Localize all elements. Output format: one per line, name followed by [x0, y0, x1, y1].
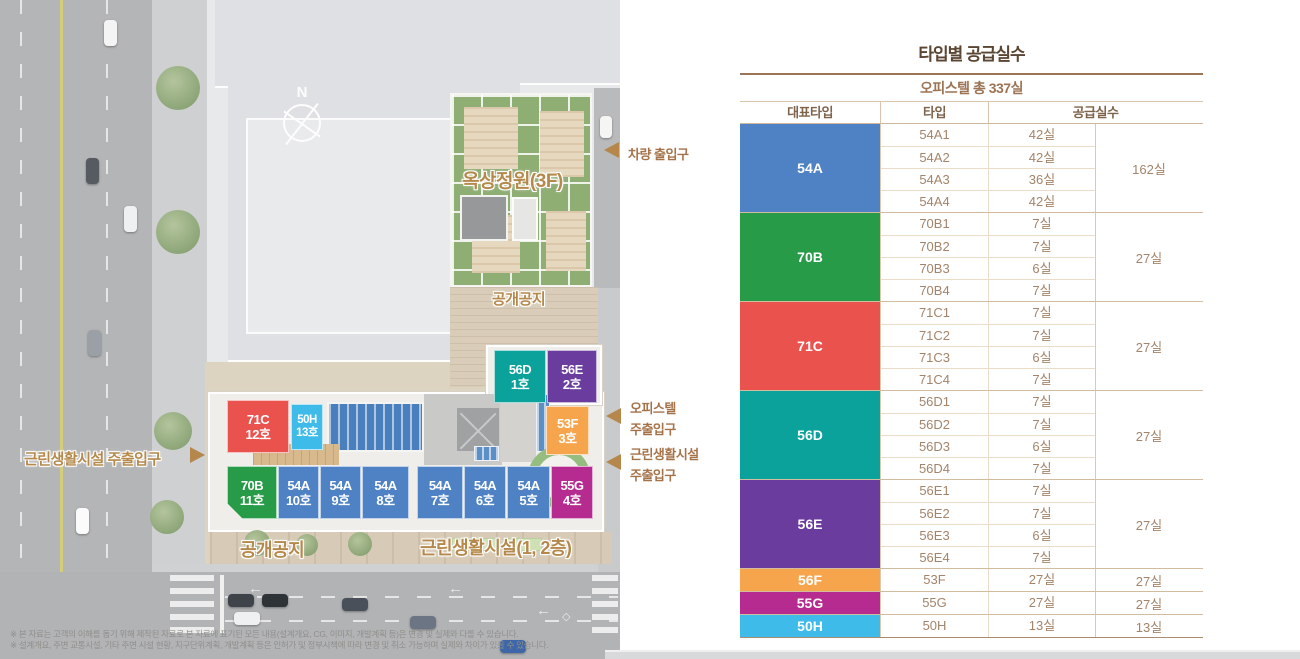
table-row: 54A442실: [881, 190, 1095, 212]
open-space-upper-label: 공개공지: [492, 288, 545, 309]
table-subtitle: 오피스텔 총 337실: [740, 73, 1203, 102]
table-group-56e: 56E 56E17실 56E27실 56E36실 56E47실 27실: [740, 480, 1203, 569]
car-icon: [124, 206, 137, 232]
group-total-cell: 27실: [1095, 569, 1202, 591]
footnote-line: ※ 본 자료는 고객의 이해를 돕기 위해 제작된 자료로 본 자료에 표기된 …: [10, 629, 610, 640]
group-total-cell: 162실: [1095, 124, 1202, 212]
table-title: 타입별 공급실수: [740, 40, 1203, 64]
unit-block-5: 54A5호: [507, 466, 550, 519]
unit-block-6: 54A6호: [464, 466, 506, 519]
table-row: 56D27실: [881, 413, 1095, 435]
compass-icon: N: [280, 84, 324, 168]
group-total-cell: 27실: [1095, 592, 1202, 614]
neighborhood-floors-label: 근린생활시설(1, 2층): [420, 534, 571, 560]
officetel-entrance-label: 오피스텔 주출입구: [630, 398, 676, 440]
site-plan: ← ← ← ◇ N 옥상정원(3F): [0, 0, 620, 659]
rep-type-cell: 55G: [740, 592, 880, 614]
rooftop-garden-label: 옥상정원(3F): [462, 166, 563, 193]
unit-block-13: 50H13호: [291, 404, 323, 450]
lane-line: [20, 0, 22, 572]
rooftop-structure: [512, 197, 538, 241]
neighborhood-entrance-label: 근린생활시설 주출입구: [630, 444, 699, 486]
rep-type-cell: 54A: [740, 124, 880, 212]
group-total-cell: 27실: [1095, 302, 1202, 390]
car-icon: [104, 20, 117, 46]
page: ← ← ← ◇ N 옥상정원(3F): [0, 0, 1300, 659]
road-vertical: [0, 0, 152, 659]
group-total-cell: 13실: [1095, 615, 1202, 637]
table-row: 71C36실: [881, 346, 1095, 368]
table-row: 56E36실: [881, 524, 1095, 546]
unit-block-4: 55G4호: [551, 466, 593, 519]
table-row: 56E47실: [881, 546, 1095, 568]
table-row: 56E27실: [881, 502, 1095, 524]
table-row: 56D17실: [881, 391, 1095, 413]
road-diamond-icon: ◇: [562, 610, 570, 623]
sidewalk-bottom: [152, 564, 620, 572]
supply-table: 타입별 공급실수 오피스텔 총 337실 대표타입 타입 공급실수 54A 54…: [740, 40, 1203, 638]
unit-block-12: 71C12호: [227, 400, 289, 453]
table-row: 71C47실: [881, 368, 1095, 390]
car-icon: [410, 616, 436, 629]
solar-panel: [474, 446, 499, 461]
neighborhood-entrance-left-label: 근린생활시설 주출입구: [24, 448, 161, 469]
crosswalk: [592, 575, 618, 633]
open-space-bottom-label: 공개공지: [240, 536, 304, 562]
rep-type-cell: 56D: [740, 391, 880, 479]
table-row: 56D47실: [881, 457, 1095, 479]
rep-type-cell: 50H: [740, 615, 880, 637]
table-row: 56E17실: [881, 480, 1095, 502]
page-bottom-strip: [605, 650, 1300, 659]
footnote-line: ※ 설계개요, 주변 교통시설, 기타 주변 시설 현황, 지구단위계획, 개발…: [10, 640, 610, 651]
car-icon: [88, 330, 101, 356]
footnote: ※ 본 자료는 고객의 이해를 돕기 위해 제작된 자료로 본 자료에 표기된 …: [10, 629, 610, 651]
entrance-arrow-right-icon: [190, 447, 205, 463]
table-row: 70B27실: [881, 235, 1095, 257]
car-icon: [228, 594, 254, 607]
tree-icon: [156, 66, 200, 110]
car-icon: [86, 158, 99, 184]
rooftop-structure: [460, 195, 508, 241]
rep-type-cell: 56E: [740, 480, 880, 568]
rep-type-cell: 71C: [740, 302, 880, 390]
table-row: 50H13실: [881, 615, 1095, 637]
tree-icon: [156, 210, 200, 254]
unit-block-2: 56E2호: [547, 350, 597, 403]
table-group-56f: 56F 53F27실 27실: [740, 569, 1203, 592]
table-row: 54A242실: [881, 146, 1095, 168]
unit-block-3: 53F3호: [546, 406, 589, 455]
table-group-71c: 71C 71C17실 71C27실 71C36실 71C47실 27실: [740, 302, 1203, 391]
car-icon: [76, 508, 89, 534]
unit-block-10: 54A10호: [278, 466, 319, 519]
stop-line: [220, 575, 224, 633]
crosswalk: [170, 575, 214, 633]
unit-block-8: 54A8호: [362, 466, 409, 519]
unit-block-7: 54A7호: [417, 466, 463, 519]
neighborhood-entrance-arrow-icon: [606, 454, 621, 470]
table-group-55g: 55G 55G27실 27실: [740, 592, 1203, 615]
table-row: 55G27실: [881, 592, 1095, 614]
table-row: 70B17실: [881, 213, 1095, 235]
unit-block-1: 56D1호: [494, 350, 546, 403]
car-icon: [600, 116, 612, 138]
lane-line: [106, 0, 108, 572]
group-total-cell: 27실: [1095, 213, 1202, 301]
skylight-roof: [327, 402, 424, 452]
table-group-50h: 50H 50H13실 13실: [740, 615, 1203, 638]
group-total-cell: 27실: [1095, 391, 1202, 479]
vehicle-entrance-label: 차량 출입구: [628, 144, 688, 165]
header-rep-type: 대표타입: [740, 102, 880, 123]
table-row: 54A142실: [881, 124, 1095, 146]
table-row: 56D36실: [881, 435, 1095, 457]
tree-icon: [150, 500, 184, 534]
unit-block-9: 54A9호: [320, 466, 361, 519]
group-total-cell: 27실: [1095, 480, 1202, 568]
car-icon: [262, 594, 288, 607]
officetel-entrance-arrow-icon: [606, 408, 621, 424]
tree-icon: [154, 412, 192, 450]
rep-type-cell: 70B: [740, 213, 880, 301]
table-header-row: 대표타입 타입 공급실수: [740, 102, 1203, 124]
table-row: 71C17실: [881, 302, 1095, 324]
table-row: 70B47실: [881, 279, 1095, 301]
road-arrow-icon: ←: [536, 602, 551, 619]
table-group-54a: 54A 54A142실 54A242실 54A336실 54A442실 162실: [740, 124, 1203, 213]
car-icon: [342, 598, 368, 611]
machine-room: [457, 408, 499, 451]
table-row: 53F27실: [881, 569, 1095, 591]
table-group-56d: 56D 56D17실 56D27실 56D36실 56D47실 27실: [740, 391, 1203, 480]
table-row: 54A336실: [881, 168, 1095, 190]
compass-north-label: N: [280, 84, 324, 101]
rep-type-cell: 56F: [740, 569, 880, 591]
road-center-line: [60, 0, 63, 572]
road-arrow-icon: ←: [448, 580, 463, 597]
table-row: 71C27실: [881, 324, 1095, 346]
vehicle-entrance-arrow-icon: [604, 142, 619, 158]
header-type: 타입: [880, 102, 988, 123]
tree-icon: [348, 532, 372, 556]
table-row: 70B36실: [881, 257, 1095, 279]
header-supply: 공급실수: [988, 102, 1202, 123]
core-area: [500, 394, 536, 462]
table-group-70b: 70B 70B17실 70B27실 70B36실 70B47실 27실: [740, 213, 1203, 302]
car-icon: [234, 612, 260, 625]
